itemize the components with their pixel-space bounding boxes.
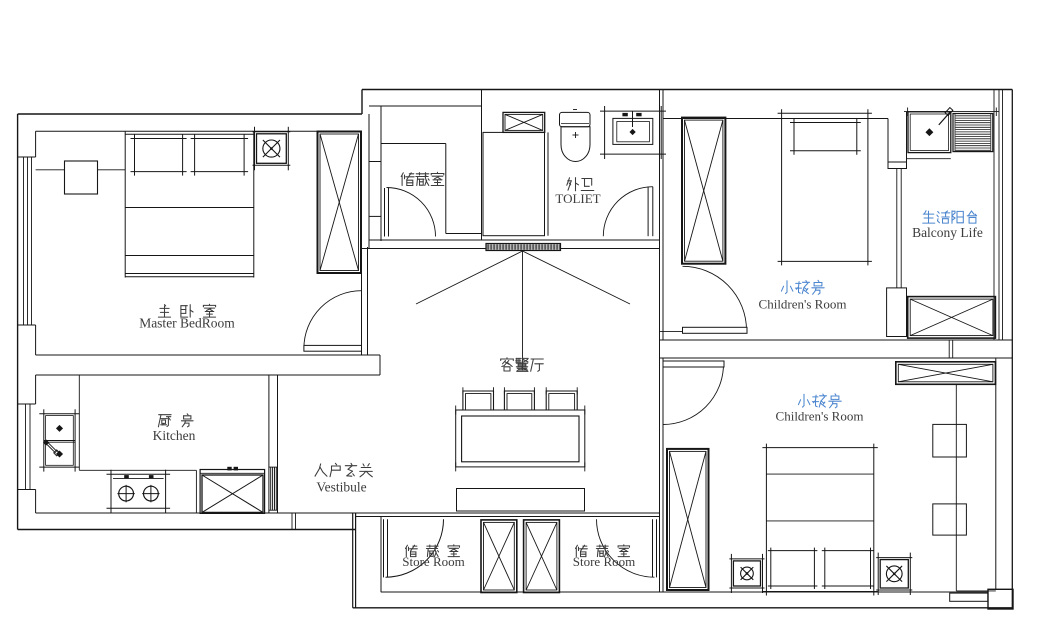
- svg-text:Master BedRoom: Master BedRoom: [139, 316, 235, 331]
- svg-text:Children's Room: Children's Room: [759, 297, 847, 312]
- svg-text:Kitchen: Kitchen: [153, 428, 196, 443]
- svg-text:Vestibule: Vestibule: [316, 480, 366, 495]
- svg-text:Store Room: Store Room: [402, 554, 464, 569]
- svg-text:Balcony Life: Balcony Life: [912, 225, 983, 240]
- svg-text:TOLIET: TOLIET: [555, 191, 600, 206]
- svg-text:Store Room: Store Room: [573, 554, 635, 569]
- svg-text:Children's Room: Children's Room: [776, 409, 864, 424]
